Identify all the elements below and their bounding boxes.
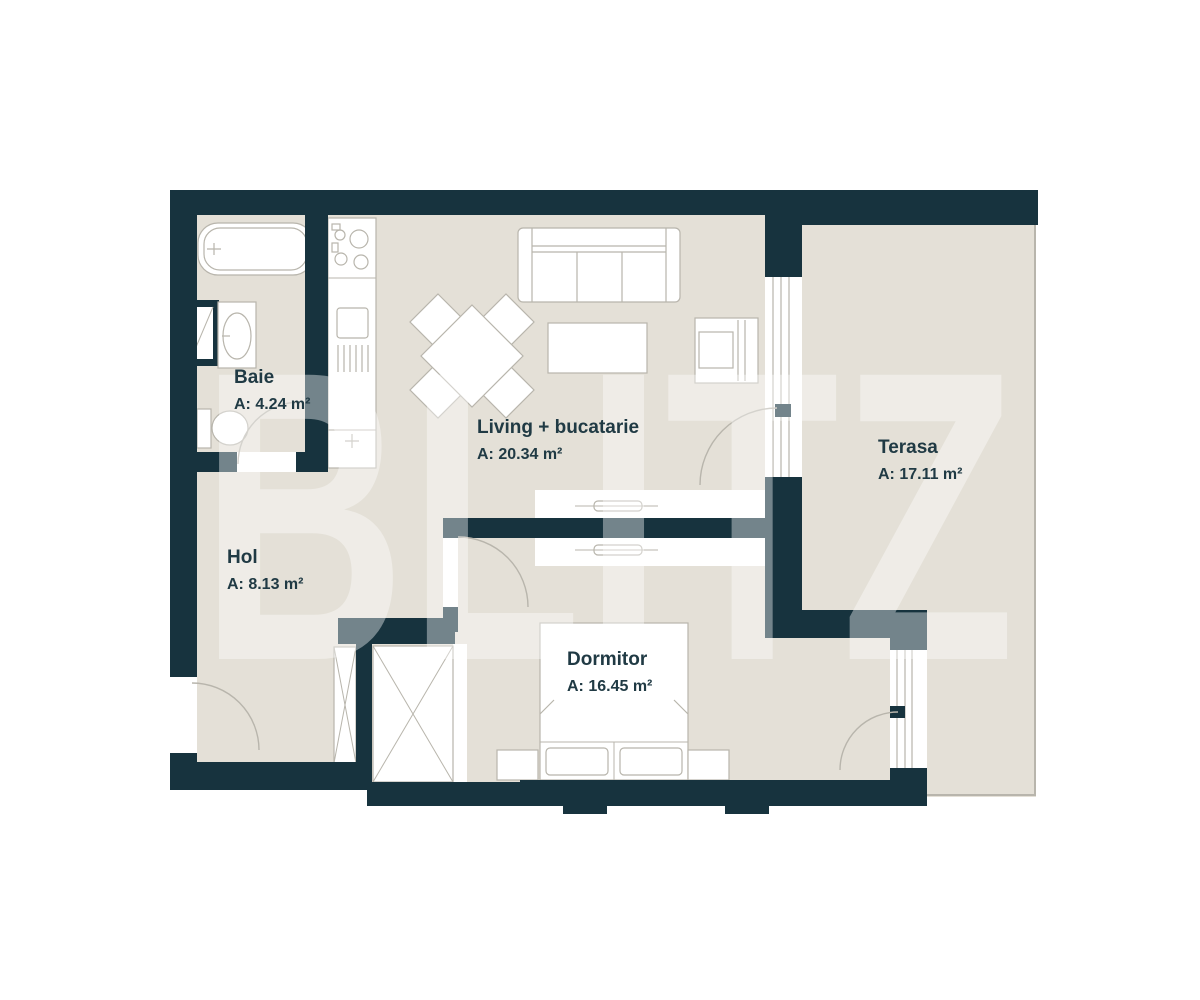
wall-bedroom-right-lower	[890, 768, 927, 804]
bed-icon	[540, 623, 688, 780]
wall-closet-bottom	[367, 782, 540, 806]
dining-table-icon	[410, 294, 534, 418]
wall-closet-vertical	[356, 618, 372, 784]
room-area: A: 4.24 m²	[234, 395, 310, 414]
wall-bedroom-bottom	[520, 780, 927, 806]
wall-bottom-tab1	[563, 806, 607, 814]
entrance-door-opening	[170, 677, 197, 753]
window-hinge-block	[775, 404, 791, 417]
wall-bath-kitchen	[305, 215, 328, 470]
wall-bath-bottom-right	[296, 452, 328, 472]
room-name: Baie	[234, 367, 310, 390]
room-label-living: Living + bucatarie A: 20.34 m²	[477, 417, 639, 464]
radiator-lower-icon	[535, 538, 767, 566]
wall-bottom-tab2	[725, 806, 769, 814]
wardrobe-icon	[373, 644, 467, 782]
nightstand-right-icon	[688, 750, 729, 780]
living-terrace-window	[765, 277, 802, 477]
bathtub-icon	[198, 223, 313, 275]
wall-living-right-upper	[765, 215, 802, 277]
bedroom-door-opening	[443, 538, 458, 607]
floor-plan-drawing	[0, 0, 1200, 1000]
room-area: A: 20.34 m²	[477, 445, 639, 464]
wall-closet-top	[338, 618, 455, 644]
room-label-terasa: Terasa A: 17.11 m²	[878, 437, 962, 484]
coffee-table-icon	[548, 323, 647, 373]
bathroom-sink-icon	[218, 302, 256, 368]
wall-left-upper	[170, 190, 197, 677]
room-label-dormitor: Dormitor A: 16.45 m²	[567, 649, 652, 696]
bathroom-door-opening	[237, 452, 296, 472]
wall-hall-bottom	[170, 762, 370, 790]
wall-living-right-lower	[765, 477, 802, 618]
wall-terrace-top-lip	[797, 215, 1038, 225]
wall-jog	[765, 610, 927, 638]
closet-cabinet-icon	[334, 647, 356, 763]
wall-bedroom-right-upper	[890, 638, 927, 650]
room-label-hol: Hol A: 8.13 m²	[227, 547, 303, 594]
room-area: A: 17.11 m²	[878, 465, 962, 484]
room-area: A: 8.13 m²	[227, 575, 303, 594]
room-name: Hol	[227, 547, 303, 570]
room-name: Terasa	[878, 437, 962, 460]
floor-plan: BLITZ Baie A: 4.24 m² Living + bucatarie…	[0, 0, 1200, 1000]
room-area: A: 16.45 m²	[567, 677, 652, 696]
wall-living-bedroom	[443, 518, 802, 538]
toilet-icon	[197, 409, 248, 448]
wall-bath-bottom-left	[197, 452, 237, 472]
kitchen-counter-icon	[328, 218, 376, 468]
wall-top	[170, 190, 1038, 215]
room-label-baie: Baie A: 4.24 m²	[234, 367, 310, 414]
room-name: Living + bucatarie	[477, 417, 639, 440]
nightstand-left-icon	[497, 750, 538, 780]
sofa-icon	[518, 228, 680, 302]
radiator-upper-icon	[535, 490, 767, 518]
tv-unit-icon	[695, 318, 758, 383]
room-name: Dormitor	[567, 649, 652, 672]
bedroom-terrace-window	[890, 650, 927, 768]
